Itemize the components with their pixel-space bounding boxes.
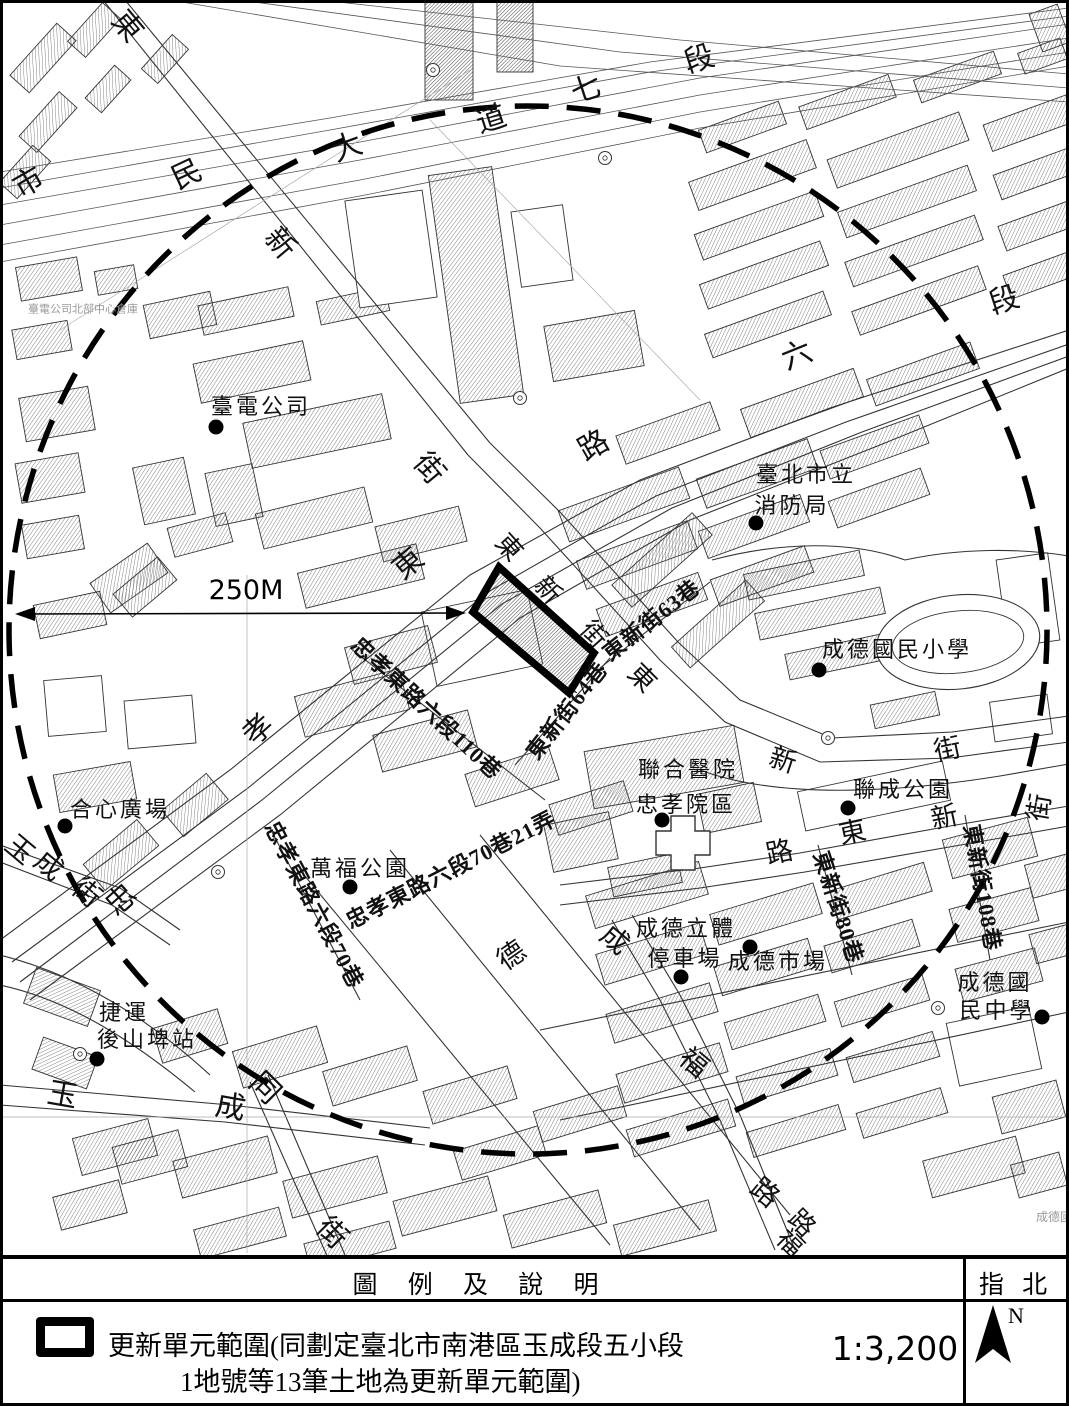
building bbox=[283, 1156, 387, 1218]
building bbox=[724, 994, 826, 1049]
building bbox=[198, 287, 294, 335]
north-arrow: N bbox=[963, 1303, 1069, 1406]
map-symbol-circle bbox=[822, 732, 835, 745]
poi-dot-wanfu-park bbox=[343, 880, 358, 895]
building bbox=[746, 1105, 845, 1158]
building bbox=[867, 342, 980, 406]
street-name-character: 孝 bbox=[236, 708, 280, 753]
poi-label-united-hospital-zhongxiao: 忠孝院區 bbox=[636, 792, 736, 817]
poi-label-taipei-fire-department: 臺北市立 bbox=[756, 462, 856, 487]
poi-label-taipei-fire-department: 消防局 bbox=[754, 493, 829, 518]
street-name-character: 東 bbox=[622, 658, 662, 698]
poi-label-chengde-market: 成德市場 bbox=[728, 949, 828, 974]
building bbox=[698, 101, 786, 153]
building bbox=[993, 146, 1069, 200]
building bbox=[544, 310, 644, 381]
street-name-character: 段 bbox=[680, 39, 719, 80]
poi-label-chengde-junior-high: 民中學 bbox=[959, 998, 1034, 1023]
poi-dot-united-hospital-zhongxiao bbox=[655, 813, 670, 828]
building bbox=[846, 1031, 940, 1082]
poi-dot-chengde-parking-garage bbox=[674, 970, 689, 985]
poi-label-mrt-houshanpi-station: 後山埤站 bbox=[97, 1027, 197, 1052]
street-name-character: 路 bbox=[744, 1172, 786, 1215]
street-name-character: 道 bbox=[472, 99, 511, 140]
poi-dot-taipower-company bbox=[209, 420, 224, 435]
map-symbol-circle bbox=[427, 64, 440, 77]
map-symbol-circle bbox=[599, 152, 612, 165]
street-name-character: 成 bbox=[213, 1089, 248, 1127]
poi-dot-chengde-market bbox=[743, 940, 758, 955]
renewal-unit-map-page: 250M市民大道七段東新街東新街東新街忠孝東路六段路東新街玉成街玉成同街德成福路… bbox=[0, 0, 1069, 1406]
building bbox=[16, 257, 83, 301]
building bbox=[12, 320, 72, 359]
legend-item-text-line1: 更新單元範圍(同劃定臺北市南港區玉成段五小段 bbox=[108, 1324, 684, 1363]
street-name-character: 德 bbox=[491, 935, 532, 977]
building bbox=[124, 695, 196, 749]
poi-dot-chengde-elementary-school bbox=[812, 663, 827, 678]
street-name-character: 新 bbox=[765, 742, 800, 779]
street-name-character: 六 bbox=[777, 335, 817, 377]
poi-label-taipower-company: 臺電公司 bbox=[211, 394, 311, 419]
building bbox=[992, 1080, 1066, 1134]
street-name-character: 路 bbox=[763, 835, 796, 870]
poi-label-chengde-junior-high: 成德國 bbox=[957, 970, 1032, 995]
north-arrow-icon bbox=[963, 1303, 1023, 1367]
street-name-character: 民 bbox=[166, 153, 207, 196]
street-lane-label: 忠孝東路六段70巷 bbox=[260, 817, 369, 992]
building bbox=[173, 1136, 277, 1198]
building bbox=[856, 1088, 948, 1139]
map-symbol-circle bbox=[514, 392, 527, 405]
north-cell-title: 指 北 bbox=[963, 1265, 1069, 1301]
street-name-character: 玉 bbox=[45, 1077, 80, 1115]
building bbox=[1029, 4, 1069, 52]
building bbox=[44, 676, 107, 737]
building bbox=[133, 457, 196, 525]
building bbox=[19, 386, 96, 441]
building bbox=[10, 23, 76, 92]
poi-label-chengde-parking-garage: 停車場 bbox=[647, 946, 722, 971]
building bbox=[323, 1046, 418, 1106]
renewal-boundary-legend-symbol bbox=[36, 1317, 94, 1357]
building bbox=[511, 205, 573, 287]
street-name-character: 大 bbox=[327, 127, 366, 168]
legend-item-text-line2: 1地號等13筆土地為更新單元範圍) bbox=[180, 1360, 581, 1399]
measure-arrowhead-left bbox=[15, 607, 35, 621]
poi-dot-hexin-plaza bbox=[58, 819, 73, 834]
building bbox=[998, 199, 1069, 251]
poi-label-chengde-parking-garage: 成德立體 bbox=[636, 916, 736, 941]
building bbox=[141, 35, 188, 84]
map-symbol-circle bbox=[74, 1048, 87, 1061]
street-name-character: 街 bbox=[407, 446, 452, 490]
poi-label-united-hospital-zhongxiao: 聯合醫院 bbox=[638, 757, 738, 782]
building bbox=[345, 190, 437, 308]
map-symbol-circle bbox=[212, 866, 225, 879]
building bbox=[616, 402, 720, 464]
poi-dot-taipei-fire-department bbox=[749, 516, 764, 531]
poi-dot-mrt-houshanpi-station bbox=[90, 1052, 105, 1067]
building bbox=[194, 1207, 287, 1259]
map-canvas: 250M市民大道七段東新街東新街東新街忠孝東路六段路東新街玉成街玉成同街德成福路… bbox=[0, 0, 1069, 1406]
small-gray-label: 成德國宅 bbox=[1036, 1209, 1069, 1224]
legend-title: 圖 例 及 說 明 bbox=[0, 1265, 963, 1301]
building bbox=[19, 92, 77, 153]
building bbox=[614, 1200, 717, 1256]
building bbox=[736, 1048, 838, 1103]
poi-label-liancheng-park: 聯成公園 bbox=[853, 777, 953, 802]
building bbox=[33, 591, 107, 638]
building bbox=[167, 513, 233, 558]
building bbox=[913, 51, 1001, 103]
legend-panel: 圖 例 及 說 明 指 北 更新單元範圍(同劃定臺北市南港區玉成段五小段 1地號… bbox=[0, 1255, 1069, 1406]
building bbox=[503, 1190, 606, 1248]
building bbox=[834, 975, 930, 1027]
building bbox=[393, 1176, 497, 1236]
street-name-character: 東 bbox=[836, 815, 869, 850]
poi-label-mrt-houshanpi-station: 捷運 bbox=[99, 1000, 149, 1025]
street-name-character: 新 bbox=[258, 221, 303, 265]
building bbox=[85, 65, 131, 112]
building bbox=[616, 1043, 728, 1103]
poi-dot-chengde-junior-high bbox=[1035, 1010, 1050, 1025]
poi-label-chengde-elementary-school: 成德國民小學 bbox=[822, 637, 972, 662]
building bbox=[53, 1180, 127, 1230]
street-name-character: 新 bbox=[928, 800, 961, 835]
street-name-character: 路 bbox=[572, 424, 614, 468]
small-gray-label: 臺電公司北部中心倉庫 bbox=[28, 302, 138, 316]
street-name-character: 街 bbox=[1022, 792, 1056, 824]
poi-label-wanfu-park: 萬福公園 bbox=[310, 856, 410, 881]
map-symbol-circle bbox=[932, 1002, 945, 1015]
poi-dot-liancheng-park bbox=[841, 801, 856, 816]
street-name-character: 街 bbox=[931, 732, 964, 767]
building bbox=[21, 515, 84, 559]
building bbox=[870, 691, 940, 728]
poi-label-hexin-plaza: 合心廣場 bbox=[70, 797, 170, 822]
measure-arrow-line bbox=[18, 613, 463, 614]
map-scale: 1:3,200 bbox=[820, 1329, 970, 1368]
measure-label: 250M bbox=[209, 575, 284, 606]
building bbox=[533, 1086, 627, 1142]
building bbox=[255, 487, 372, 549]
building bbox=[923, 1136, 1026, 1198]
